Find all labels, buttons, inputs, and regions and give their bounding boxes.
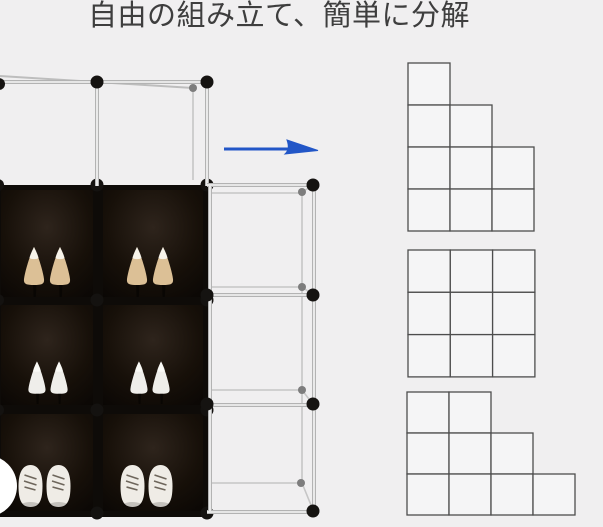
diagram-cell <box>408 147 450 189</box>
diagram-cell <box>450 147 492 189</box>
diagram-cell <box>492 147 534 189</box>
right-arrow-icon <box>224 140 318 154</box>
diagram-cell <box>533 474 575 515</box>
diagram-cell <box>407 474 449 515</box>
top-wireframe-row <box>0 76 214 187</box>
diagram-cell <box>407 433 449 474</box>
diagram-cell <box>493 292 535 334</box>
diagram-cell <box>408 292 450 334</box>
diagram-cell <box>408 189 450 231</box>
product-illustration: 自由の組み立て、簡単に分解 <box>0 0 603 527</box>
diagram-cell <box>408 335 450 377</box>
diagram-staircase-tall-left <box>408 63 534 231</box>
shoe-rack-photo <box>0 179 214 520</box>
diagram-cell <box>449 433 491 474</box>
diagram-cell <box>449 392 491 433</box>
diagram-cell <box>493 250 535 292</box>
diagram-staircase-wide <box>407 392 575 515</box>
diagram-cell <box>492 189 534 231</box>
diagram-cell <box>408 250 450 292</box>
attach-wireframe-column <box>201 179 320 518</box>
diagram-cell <box>449 474 491 515</box>
diagram-cell <box>493 335 535 377</box>
diagram-cell <box>450 189 492 231</box>
diagram-grid-3x3 <box>408 250 535 377</box>
configuration-diagrams <box>407 63 575 515</box>
diagram-cell <box>450 335 492 377</box>
diagram-cell <box>408 105 450 147</box>
diagram-cell <box>491 474 533 515</box>
diagram-cell <box>450 250 492 292</box>
assembly-illustration-scene <box>0 0 603 527</box>
diagram-cell <box>408 63 450 105</box>
diagram-cell <box>450 105 492 147</box>
diagram-cell <box>491 433 533 474</box>
diagram-cell <box>450 292 492 334</box>
diagram-cell <box>407 392 449 433</box>
